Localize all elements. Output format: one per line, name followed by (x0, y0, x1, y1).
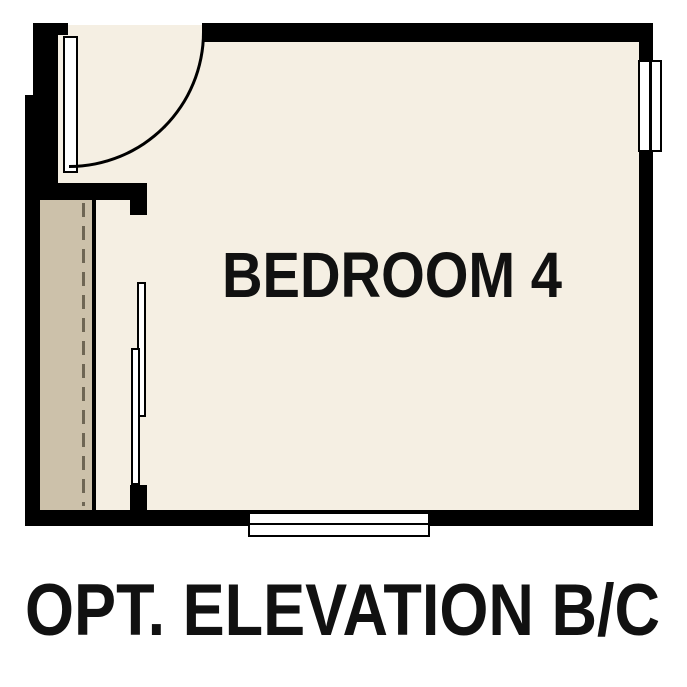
room-label: BEDROOM 4 (222, 239, 562, 311)
caption-text: OPT. ELEVATION B/C (25, 570, 660, 651)
floor-plan-canvas: BEDROOM 4 OPT. ELEVATION B/C (0, 0, 687, 687)
labels-layer: BEDROOM 4 OPT. ELEVATION B/C (0, 0, 687, 687)
